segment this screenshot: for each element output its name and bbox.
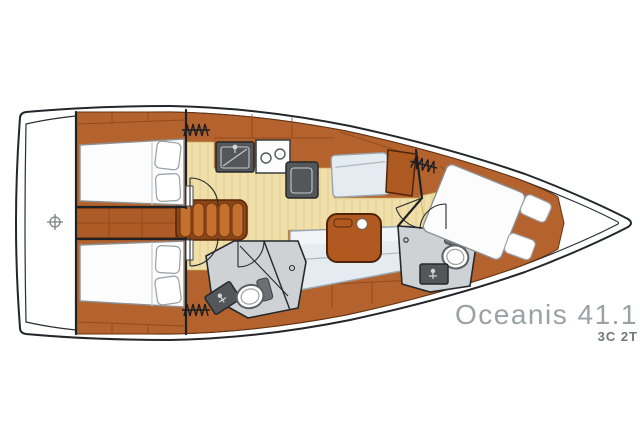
mid-head [204,241,306,318]
boat-floor-plan: Oceanis 41.1 3C 2T [0,0,640,446]
nav-seat [331,153,389,198]
boat-floor-plan-page: Oceanis 41.1 3C 2T [0,0,640,446]
model-title: Oceanis 41.1 [455,299,638,330]
table-cupholder [357,219,368,230]
pillow [155,245,180,273]
nav-station [331,150,416,197]
pillow [155,173,180,201]
chart-table [386,150,416,196]
engine-box [76,208,176,238]
variant-label: 3C 2T [598,329,638,344]
forward-head-sink [420,264,448,284]
saloon-table [327,214,381,262]
pillow [154,141,181,171]
pillow [154,275,182,305]
